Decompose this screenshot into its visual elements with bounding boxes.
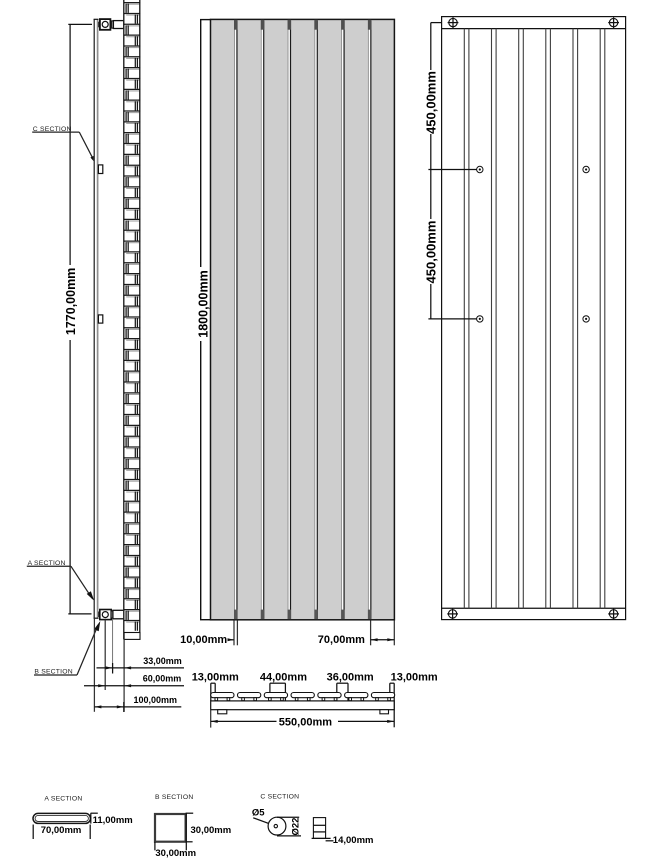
svg-text:30,00mm: 30,00mm xyxy=(155,848,196,859)
svg-text:70,00mm: 70,00mm xyxy=(318,634,365,646)
svg-text:44,00mm: 44,00mm xyxy=(260,672,307,684)
svg-text:1800,00mm: 1800,00mm xyxy=(196,270,210,337)
svg-text:10,00mm: 10,00mm xyxy=(180,634,227,646)
svg-text:450,00mm: 450,00mm xyxy=(424,71,439,134)
svg-text:B SECTION: B SECTION xyxy=(155,794,193,801)
svg-text:Ø22: Ø22 xyxy=(290,818,301,836)
svg-text:550,00mm: 550,00mm xyxy=(279,717,332,729)
svg-text:33,00mm: 33,00mm xyxy=(143,656,182,666)
svg-text:11,00mm: 11,00mm xyxy=(93,815,133,826)
svg-text:C SECTION: C SECTION xyxy=(260,794,299,801)
svg-text:70,00mm: 70,00mm xyxy=(41,825,82,836)
svg-text:1770,00mm: 1770,00mm xyxy=(64,268,78,335)
svg-text:60,00mm: 60,00mm xyxy=(143,673,182,683)
svg-text:450,00mm: 450,00mm xyxy=(424,221,439,284)
svg-text:Ø5: Ø5 xyxy=(252,807,265,818)
svg-text:36,00mm: 36,00mm xyxy=(327,672,374,684)
svg-text:A SECTION: A SECTION xyxy=(44,795,82,802)
svg-text:13,00mm: 13,00mm xyxy=(391,672,438,684)
svg-text:100,00mm: 100,00mm xyxy=(134,695,178,705)
svg-text:30,00mm: 30,00mm xyxy=(191,825,232,836)
svg-text:13,00mm: 13,00mm xyxy=(192,672,239,684)
svg-text:14,00mm: 14,00mm xyxy=(333,835,374,846)
